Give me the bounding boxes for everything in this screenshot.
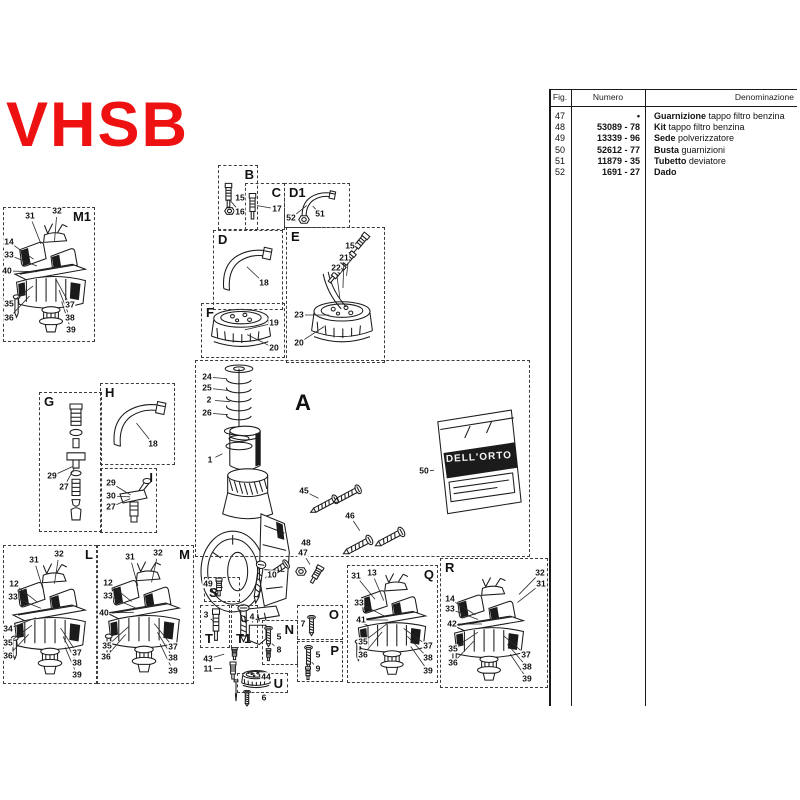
part-callout-32: 32	[53, 549, 64, 558]
part-callout-24: 24	[201, 372, 212, 381]
page-title: VHSB	[6, 94, 189, 157]
part-callout-37: 37	[64, 300, 75, 309]
part-callout-27: 27	[105, 502, 116, 511]
part-callout-36: 36	[3, 313, 14, 322]
denominazione-cell: Sede polverizzatore	[654, 133, 797, 144]
part-callout-52: 52	[285, 213, 296, 222]
part-callout-37: 37	[71, 648, 82, 657]
part-callout-35: 35	[2, 638, 13, 647]
part-callout-36: 36	[447, 658, 458, 667]
table-col2-rule	[645, 89, 646, 706]
part-callout-22: 22	[330, 263, 341, 272]
part-callout-20: 20	[293, 338, 304, 347]
numero-cell: 13339 - 96	[572, 133, 640, 144]
part-callout-36: 36	[2, 651, 13, 660]
part-callout-35: 35	[3, 299, 14, 308]
part-callout-45: 45	[298, 486, 309, 495]
col-header-numero: Numero	[572, 92, 644, 102]
part-callout-15: 15	[344, 241, 355, 250]
part-callout-19: 19	[268, 318, 279, 327]
part-callout-31: 31	[535, 579, 546, 588]
part-callout-33: 33	[444, 604, 455, 613]
part-callout-6: 6	[261, 693, 268, 702]
numero-cell: 53089 - 78	[572, 122, 640, 133]
part-callout-44: 44	[260, 672, 271, 681]
part-callout-26: 26	[201, 408, 212, 417]
part-callout-43: 43	[202, 654, 213, 663]
part-callout-18: 18	[147, 439, 158, 448]
part-callout-14: 14	[3, 237, 14, 246]
part-name: Tubetto	[654, 156, 686, 166]
part-callout-32: 32	[534, 568, 545, 577]
part-name: Kit	[654, 122, 666, 132]
part-callout-49: 49	[202, 579, 213, 588]
part-callout-35: 35	[101, 641, 112, 650]
numero-cell: 11879 - 35	[572, 156, 640, 167]
denominazione-cell: Kit tappo filtro benzina	[654, 122, 797, 133]
numero-cell: 52612 - 77	[572, 145, 640, 156]
part-callout-31: 31	[350, 571, 361, 580]
part-callout-35: 35	[357, 637, 368, 646]
part-callout-10: 10	[266, 570, 277, 579]
part-callout-35: 35	[447, 644, 458, 653]
part-callout-32: 32	[51, 206, 62, 215]
part-callout-33: 33	[3, 250, 14, 259]
part-callout-16: 16	[234, 207, 245, 216]
table-header-rule	[549, 106, 797, 107]
part-callout-39: 39	[521, 674, 532, 683]
part-callout-31: 31	[24, 211, 35, 220]
part-callout-50: 50	[418, 466, 429, 475]
part-callout-37: 37	[167, 642, 178, 651]
part-callout-33: 33	[102, 591, 113, 600]
denominazione-cell: Dado	[654, 167, 797, 178]
part-callout-34: 34	[2, 624, 13, 633]
part-name: Busta	[654, 145, 679, 155]
part-callout-23: 23	[293, 310, 304, 319]
part-callout-27: 27	[58, 482, 69, 491]
part-callout-46: 46	[344, 511, 355, 520]
part-callout-25: 25	[201, 383, 212, 392]
part-callout-15: 15	[234, 193, 245, 202]
catalog-page: VHSB	[0, 0, 800, 800]
fig-cell: 48	[549, 122, 571, 133]
part-callout-42: 42	[446, 619, 457, 628]
part-callout-33: 33	[7, 592, 18, 601]
table-col1-rule	[571, 89, 572, 706]
diagram-box-label-A: A	[295, 390, 311, 416]
fig-cell: 50	[549, 145, 571, 156]
part-callout-13: 13	[366, 568, 377, 577]
part-callout-32: 32	[152, 548, 163, 557]
part-callout-30: 30	[105, 491, 116, 500]
part-callout-1: 1	[207, 455, 214, 464]
part-callout-37: 37	[520, 650, 531, 659]
part-callout-14: 14	[444, 594, 455, 603]
fig-cell: 51	[549, 156, 571, 167]
part-callout-36: 36	[100, 652, 111, 661]
part-callout-38: 38	[521, 662, 532, 671]
part-callout-17: 17	[271, 204, 282, 213]
part-callout-21: 21	[338, 253, 349, 262]
part-callout-39: 39	[167, 666, 178, 675]
part-callout-9: 9	[315, 664, 322, 673]
part-name: Sede	[654, 133, 676, 143]
part-callout-37: 37	[422, 641, 433, 650]
part-callout-31: 31	[124, 552, 135, 561]
part-callout-48: 48	[300, 538, 311, 547]
part-callout-38: 38	[167, 653, 178, 662]
part-callout-11: 11	[203, 664, 214, 673]
part-callout-12: 12	[8, 579, 19, 588]
part-callout-4: 4	[249, 612, 256, 621]
numero-cell: 1691 - 27	[572, 167, 640, 178]
denominazione-cell: Busta guarnizioni	[654, 145, 797, 156]
part-callout-2: 2	[206, 395, 213, 404]
fig-cell: 52	[549, 167, 571, 178]
part-callout-29: 29	[46, 471, 57, 480]
denominazione-cell: Guarnizione tappo filtro benzina	[654, 111, 797, 122]
col-header-denominazione: Denominazione	[650, 92, 794, 102]
part-callout-40: 40	[1, 266, 12, 275]
part-callout-5: 5	[315, 650, 322, 659]
part-callout-39: 39	[65, 325, 76, 334]
part-callout-39: 39	[71, 670, 82, 679]
table-left-rule	[549, 89, 551, 706]
part-callout-8: 8	[276, 645, 283, 654]
part-callout-3: 3	[203, 610, 210, 619]
part-callout-5: 5	[276, 632, 283, 641]
part-callout-36: 36	[357, 650, 368, 659]
col-header-fig: Fig.	[549, 92, 571, 102]
part-callout-31: 31	[28, 555, 39, 564]
numero-cell: •	[572, 111, 640, 122]
part-callout-38: 38	[422, 653, 433, 662]
part-callout-29: 29	[105, 478, 116, 487]
part-callout-38: 38	[71, 658, 82, 667]
part-callout-41: 41	[355, 615, 366, 624]
table-top-rule	[549, 89, 797, 90]
fig-cell: 49	[549, 133, 571, 144]
part-name: Guarnizione	[654, 111, 706, 121]
part-callout-33: 33	[353, 598, 364, 607]
part-callout-51: 51	[314, 209, 325, 218]
denominazione-cell: Tubetto deviatore	[654, 156, 797, 167]
fig-cell: 47	[549, 111, 571, 122]
part-callout-18: 18	[258, 278, 269, 287]
part-callout-47: 47	[297, 548, 308, 557]
part-callout-40: 40	[98, 608, 109, 617]
part-callout-7: 7	[300, 619, 307, 628]
part-callout-20: 20	[268, 343, 279, 352]
part-name: Dado	[654, 167, 677, 177]
part-callout-38: 38	[64, 313, 75, 322]
part-callout-39: 39	[422, 666, 433, 675]
part-callout-12: 12	[102, 578, 113, 587]
